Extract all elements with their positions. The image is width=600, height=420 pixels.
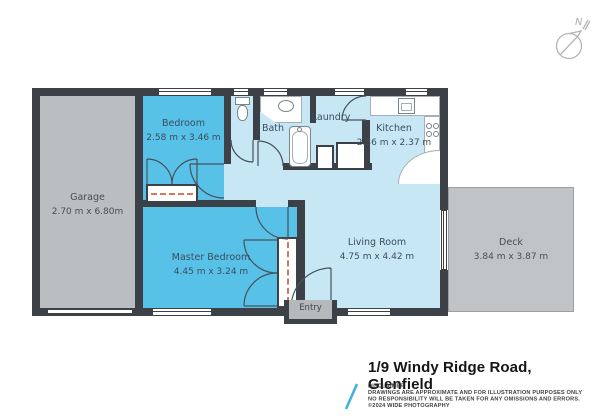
- room-dims: 2.58 m x 3.46 m: [143, 131, 224, 145]
- room-dims: 4.75 m x 4.42 m: [317, 250, 437, 264]
- room-name: Living Room: [317, 236, 437, 250]
- door-arc-master: [256, 207, 288, 239]
- room-name: Garage: [40, 191, 135, 205]
- door-arc-bedroom: [190, 164, 224, 198]
- room-name: Kitchen: [348, 122, 440, 136]
- compass-north-arrow: [583, 20, 590, 30]
- disclaimer-line: ©2024 WIDE PHOTOGRAPHY: [368, 402, 600, 408]
- door-arc-toilet: [231, 140, 253, 162]
- compass-icon: N: [548, 12, 594, 64]
- room-dims: 4.45 m x 3.24 m: [143, 265, 279, 279]
- room-label-kitchen: Kitchen 2.36 m x 2.37 m: [348, 122, 440, 150]
- brand-slash-icon: [340, 380, 364, 414]
- floor-plan-page: Garage 2.70 m x 6.80m Bedroom 2.58 m x 3…: [0, 0, 600, 420]
- door-arc-closet-right: [172, 159, 197, 184]
- room-name: Bedroom: [143, 117, 224, 131]
- brand-slash: [346, 384, 357, 409]
- room-name: Bath: [251, 122, 295, 136]
- door-arc-closet-left: [147, 159, 172, 184]
- room-label-master-bedroom: Master Bedroom 4.45 m x 3.24 m: [143, 251, 279, 279]
- room-label-bedroom: Bedroom 2.58 m x 3.46 m: [143, 117, 224, 145]
- room-entry: Entry: [284, 300, 337, 324]
- room-dims: 2.70 m x 6.80m: [40, 205, 135, 219]
- room-dims: 2.36 m x 2.37 m: [348, 136, 440, 150]
- compass-north-label: N: [575, 17, 583, 28]
- room-name: Master Bedroom: [143, 251, 279, 265]
- room-label-bath: Bath: [251, 122, 295, 136]
- room-label-deck: Deck 3.84 m x 3.87 m: [448, 236, 574, 264]
- room-name: Deck: [448, 236, 574, 250]
- door-arc-bath: [258, 141, 283, 166]
- room-name: Entry: [299, 303, 322, 313]
- room-label-garage: Garage 2.70 m x 6.80m: [40, 191, 135, 219]
- disclaimer-text: DISCLAIMER DRAWINGS ARE APPROXIMATE AND …: [368, 383, 600, 409]
- room-dims: 3.84 m x 3.87 m: [448, 250, 574, 264]
- room-label-living-room: Living Room 4.75 m x 4.42 m: [317, 236, 437, 264]
- disclaimer-line: NO RESPONSIBILITY WILL BE TAKEN FOR ANY …: [368, 396, 600, 402]
